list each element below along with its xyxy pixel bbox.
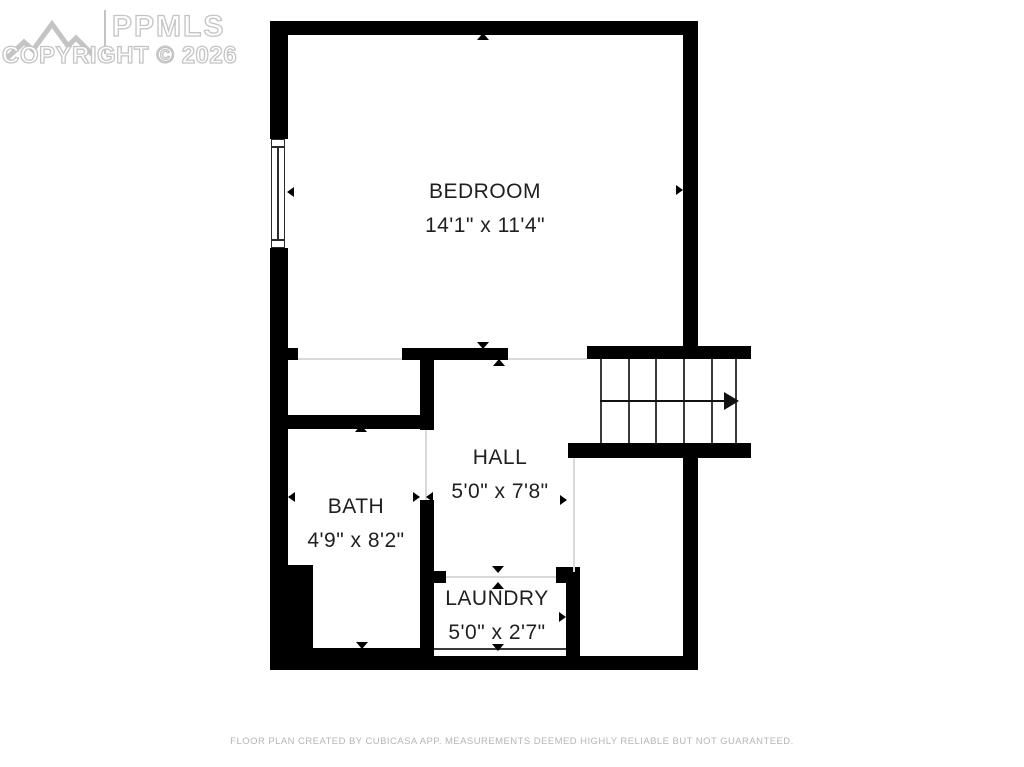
- bath-bottom-marker: [356, 642, 368, 649]
- bedroom-label: BEDROOM 14'1" x 11'4": [335, 180, 635, 238]
- bedroom-bottom-marker: [477, 342, 489, 349]
- opening-line-laundry-door: [446, 576, 556, 578]
- room-dimensions: 14'1" x 11'4": [335, 214, 635, 238]
- wall-bath-notch: [270, 565, 313, 670]
- stairs-arrowhead-icon: [724, 392, 739, 410]
- room-dimensions: 4'9" x 8'2": [256, 529, 456, 553]
- footer-disclaimer: FLOOR PLAN CREATED BY CUBICASA APP. MEAS…: [0, 736, 1024, 747]
- wall-stair-top: [587, 346, 751, 359]
- window-symbol: [271, 139, 285, 248]
- watermark: PPMLS COPYRIGHT © 2026: [0, 0, 230, 90]
- wall-bath-bottom: [313, 648, 423, 660]
- hall-bottom-marker: [492, 566, 504, 573]
- bath-top-marker: [355, 425, 367, 432]
- room-name: BATH: [256, 495, 456, 519]
- watermark-copyright: COPYRIGHT © 2026: [2, 42, 237, 70]
- wall-laundry-top-right: [556, 567, 580, 583]
- wall-right-lower: [683, 458, 698, 670]
- bedroom-right-marker: [676, 185, 683, 195]
- room-dimensions: 5'0" x 2'7": [397, 621, 597, 645]
- floor-plan-canvas: PPMLS COPYRIGHT © 2026: [0, 0, 1024, 767]
- watermark-brand: PPMLS: [112, 10, 225, 44]
- wall-laundry-top-left: [420, 571, 446, 583]
- hall-top-marker: [493, 359, 505, 366]
- stairs-direction-arrow-icon: [600, 400, 727, 402]
- opening-line-bedroom-door: [508, 358, 587, 360]
- laundry-label: LAUNDRY 5'0" x 2'7": [397, 587, 597, 645]
- room-name: HALL: [400, 446, 600, 470]
- laundry-bottom-marker: [492, 644, 504, 651]
- room-name: LAUNDRY: [397, 587, 597, 611]
- wall-right-upper: [683, 21, 698, 358]
- wall-left-upper: [270, 21, 288, 139]
- bedroom-left-marker: [287, 187, 294, 197]
- wall-bedroom-bottom-stub: [286, 348, 298, 360]
- bath-label: BATH 4'9" x 8'2": [256, 495, 456, 553]
- bedroom-top-marker: [477, 33, 489, 40]
- opening-line-left: [298, 358, 402, 360]
- room-name: BEDROOM: [335, 180, 635, 204]
